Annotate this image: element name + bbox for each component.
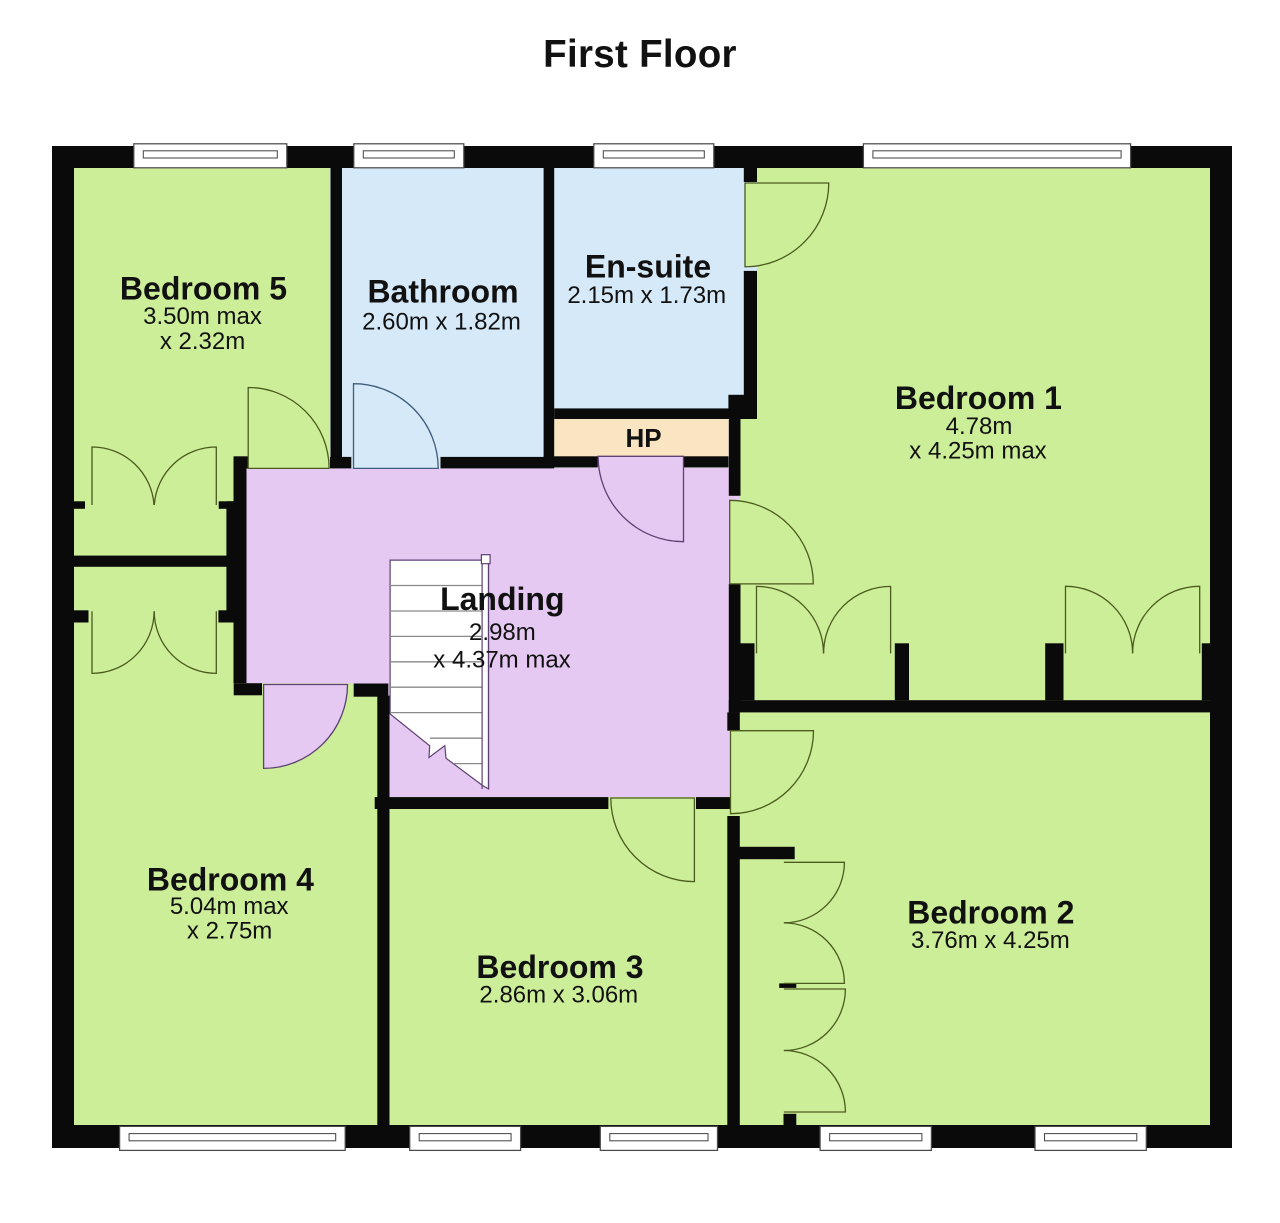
svg-text:x 2.75m: x 2.75m xyxy=(187,918,272,945)
svg-text:x 4.37m max: x 4.37m max xyxy=(433,647,570,674)
svg-text:HP: HP xyxy=(626,423,662,453)
svg-text:Bathroom: Bathroom xyxy=(367,274,518,310)
svg-text:First Floor: First Floor xyxy=(543,33,737,76)
svg-text:2.86m x 3.06m: 2.86m x 3.06m xyxy=(479,981,638,1008)
svg-text:En-suite: En-suite xyxy=(585,249,711,285)
svg-text:3.76m x 4.25m: 3.76m x 4.25m xyxy=(911,927,1070,954)
svg-text:Bedroom 2: Bedroom 2 xyxy=(907,895,1074,931)
svg-text:2.15m x 1.73m: 2.15m x 1.73m xyxy=(567,282,726,309)
svg-text:2.98m: 2.98m xyxy=(469,619,536,646)
svg-text:Landing: Landing xyxy=(440,581,564,617)
svg-text:Bedroom 3: Bedroom 3 xyxy=(476,949,643,985)
svg-text:x 2.32m: x 2.32m xyxy=(160,328,245,355)
svg-text:3.50m max: 3.50m max xyxy=(143,303,262,330)
svg-text:Bedroom 5: Bedroom 5 xyxy=(120,271,287,307)
svg-text:4.78m: 4.78m xyxy=(946,413,1013,440)
svg-text:x 4.25m max: x 4.25m max xyxy=(909,437,1046,464)
svg-text:5.04m max: 5.04m max xyxy=(170,893,289,920)
svg-text:Bedroom 1: Bedroom 1 xyxy=(895,380,1062,416)
svg-text:2.60m x 1.82m: 2.60m x 1.82m xyxy=(362,308,521,335)
svg-text:Bedroom 4: Bedroom 4 xyxy=(147,861,314,897)
